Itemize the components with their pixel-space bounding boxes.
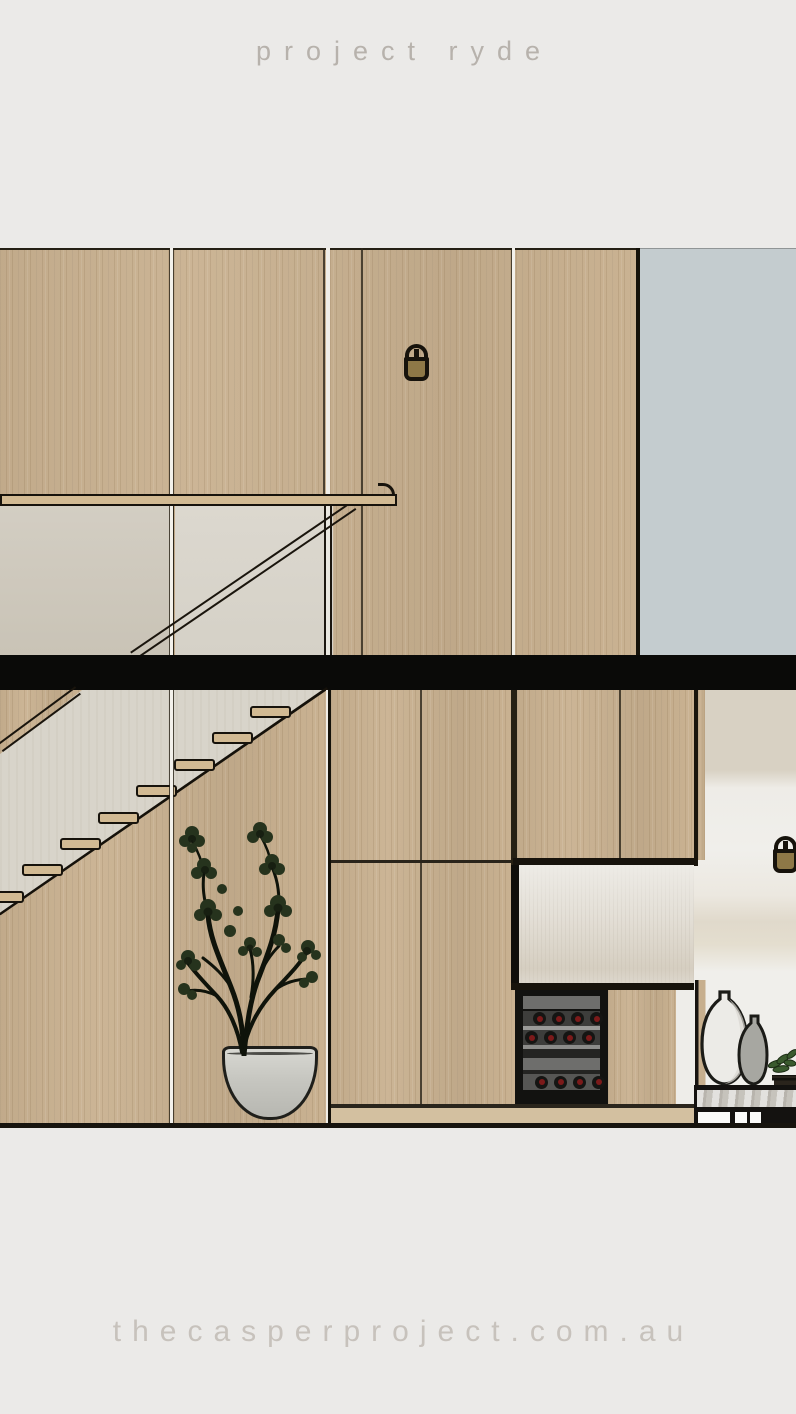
wine-bottle-row (523, 1011, 600, 1026)
stair-tread (98, 812, 139, 824)
trailing-plant (767, 1048, 796, 1073)
wine-bottle (582, 1031, 595, 1044)
wine-bottle (571, 1012, 584, 1025)
fridge-shelf (523, 1058, 600, 1070)
wall-sconce-lower (772, 836, 796, 874)
cabinet-bottom-edge (513, 858, 704, 865)
floor-strip (331, 1108, 700, 1123)
stair-tread (22, 864, 63, 876)
cabinet-panel (608, 990, 676, 1105)
panel-joint (511, 248, 515, 655)
elevation-render (0, 248, 796, 1128)
drawer-front (698, 1112, 730, 1123)
bench-side-edge (694, 1085, 697, 1107)
wine-bottle-row (523, 1074, 600, 1090)
glass-pane (0, 504, 170, 655)
blue-feature-wall (640, 248, 796, 655)
drawer-front (735, 1112, 747, 1123)
cabinet-joint (619, 690, 621, 860)
drawer-front (750, 1112, 761, 1123)
drawer-front (765, 1112, 796, 1123)
stacked-books (772, 1075, 796, 1085)
joinery-panels (331, 690, 517, 1123)
overhead-cabinets (517, 690, 694, 862)
joinery-joint (420, 690, 422, 1108)
floor-slab-section (0, 655, 796, 690)
sconce-shade-icon (404, 357, 429, 381)
joinery-joint (331, 860, 517, 863)
wine-bottle (544, 1031, 557, 1044)
bench-wall-edge (695, 980, 699, 1087)
splashback-niche (517, 865, 694, 983)
stair-tread (174, 759, 215, 771)
website-url: thecasperproject.com.au (0, 1315, 796, 1349)
panel-joint (361, 248, 363, 655)
niche-side-panel (511, 865, 519, 990)
stair-tread (0, 891, 24, 903)
social-post-page: project ryde (0, 0, 796, 1414)
wine-bottle (554, 1076, 567, 1089)
render-bottom-edge (0, 1123, 796, 1128)
sconce-shade-icon (773, 849, 796, 873)
wine-bottle (525, 1031, 538, 1044)
wine-bottle (573, 1076, 586, 1089)
wall-sconce-upper (403, 344, 430, 382)
wine-bottle (552, 1012, 565, 1025)
wine-bottle-row (523, 1030, 600, 1045)
bench-marble-face (697, 1090, 796, 1107)
stair-tread (212, 732, 253, 744)
wine-bottle (533, 1012, 546, 1025)
wine-bottle (592, 1076, 605, 1089)
wine-fridge (515, 990, 608, 1105)
wall-return (676, 990, 696, 1105)
bench-decor-vases (695, 980, 796, 1087)
stair-handrail (0, 494, 397, 506)
cabinet-side-sliver (698, 690, 705, 860)
stair-tread (60, 838, 101, 850)
stair-tread (250, 706, 291, 718)
wine-bottle (563, 1031, 576, 1044)
wine-bottle (535, 1076, 548, 1089)
wine-bottle (590, 1012, 603, 1025)
potted-tree (158, 811, 333, 1056)
fridge-counter-edge (511, 983, 700, 990)
page-title: project ryde (0, 36, 796, 67)
fridge-gap (523, 1049, 600, 1058)
fridge-shelf (523, 996, 600, 1009)
